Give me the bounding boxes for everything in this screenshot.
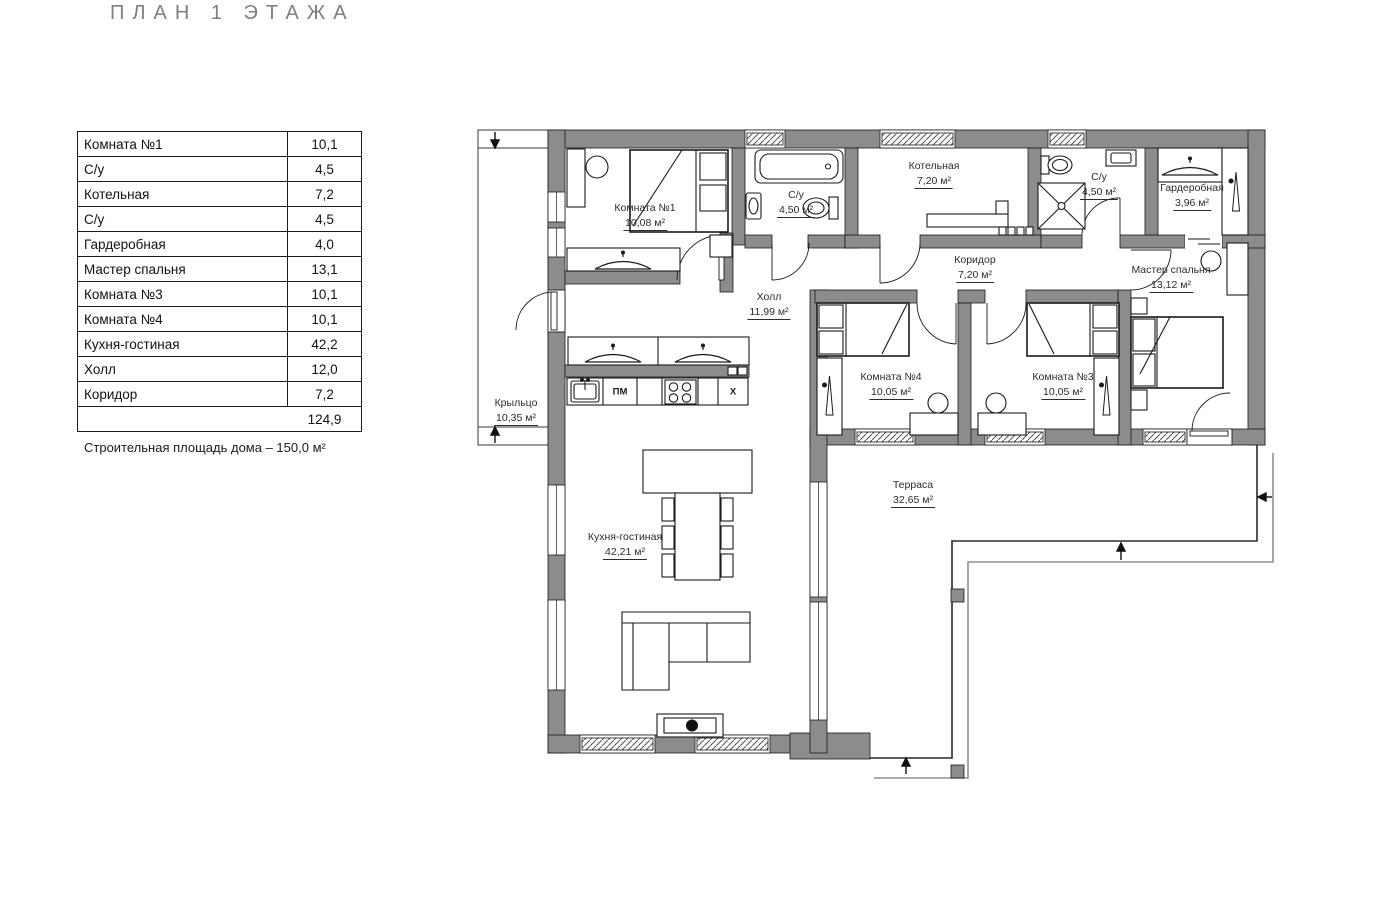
room-label-kitchen: Кухня-гостиная42,21 м² <box>588 532 662 560</box>
table-row: Гардеробная4,0 <box>78 232 361 257</box>
room-label-terrasa: Терраса32,65 м² <box>891 480 935 508</box>
chair-icon <box>928 393 948 413</box>
sofa-icon <box>622 612 750 690</box>
room-label-kotelnaya: Котельная7,20 м² <box>909 161 960 189</box>
side-table-icon <box>586 156 608 178</box>
build-area-note: Строительная площадь дома – 150,0 м² <box>84 440 326 455</box>
counter-icon <box>927 201 1033 235</box>
kitchen-sink-icon <box>571 379 599 402</box>
sink-icon <box>746 193 761 219</box>
shower-icon <box>1038 183 1085 229</box>
table-row: Кухня-гостиная42,2 <box>78 332 361 357</box>
room-label-koridor: Коридор7,20 м² <box>954 255 995 283</box>
sink-icon <box>1106 150 1136 166</box>
stove-icon <box>665 380 696 404</box>
room-area-table: Комната №110,1 С/у4,5 Котельная7,2 С/у4,… <box>77 131 362 432</box>
bed-icon <box>1027 303 1119 356</box>
room-label-holl: Холл11,99 м² <box>747 292 790 320</box>
table-row: Холл12,0 <box>78 357 361 382</box>
table-row: С/у4,5 <box>78 207 361 232</box>
floor-plan: Комната №110,08 м² С/у4,50 м² Котельная7… <box>470 122 1280 797</box>
chair-icon <box>986 393 1006 413</box>
desk-icon <box>978 413 1026 435</box>
table-row: Комната №310,1 <box>78 282 361 307</box>
tv-icon <box>657 714 723 737</box>
table-row: С/у4,5 <box>78 157 361 182</box>
room-label-kryltso: Крыльцо10,35 м² <box>494 398 538 426</box>
table-row: Комната №410,1 <box>78 307 361 332</box>
room-label-komnata1: Комната №110,08 м² <box>614 203 675 231</box>
toilet-icon <box>1041 156 1072 174</box>
wardrobe-icon <box>1094 358 1119 435</box>
desk-icon <box>567 149 585 207</box>
bathtub-icon <box>755 150 843 183</box>
bed-icon <box>1131 317 1223 388</box>
room-label-su1: С/у4,50 м² <box>777 190 815 218</box>
bed-icon <box>817 303 909 356</box>
kitchen-counter-icon <box>567 378 748 405</box>
nightstand-icon <box>710 235 732 257</box>
room-label-su2: С/у4,50 м² <box>1080 172 1118 200</box>
room-label-garderobnaya: Гардеробная3,96 м² <box>1160 183 1224 211</box>
room-label-komnata3: Комната №310,05 м² <box>1032 372 1093 400</box>
table-row: Коридор7,2 <box>78 382 361 407</box>
floor-plan-drawing <box>470 122 1280 797</box>
table-row: Комната №110,1 <box>78 132 361 157</box>
table-total-row: 124,9 <box>78 407 361 431</box>
dining-table-icon <box>643 450 752 580</box>
table-row: Мастер спальня13,1 <box>78 257 361 282</box>
desk-icon <box>910 413 958 435</box>
room-label-master: Мастер спальня13,12 м² <box>1131 265 1210 293</box>
wardrobe-icon <box>567 248 680 271</box>
fridge-label: Х <box>730 387 736 398</box>
page-title: ПЛАН 1 ЭТАЖА <box>110 2 355 25</box>
desk-icon <box>1227 243 1248 295</box>
wardrobe-icon <box>817 358 842 435</box>
table-row: Котельная7,2 <box>78 182 361 207</box>
room-label-komnata4: Комната №410,05 м² <box>860 372 921 400</box>
dishwasher-label: ПМ <box>613 387 628 398</box>
